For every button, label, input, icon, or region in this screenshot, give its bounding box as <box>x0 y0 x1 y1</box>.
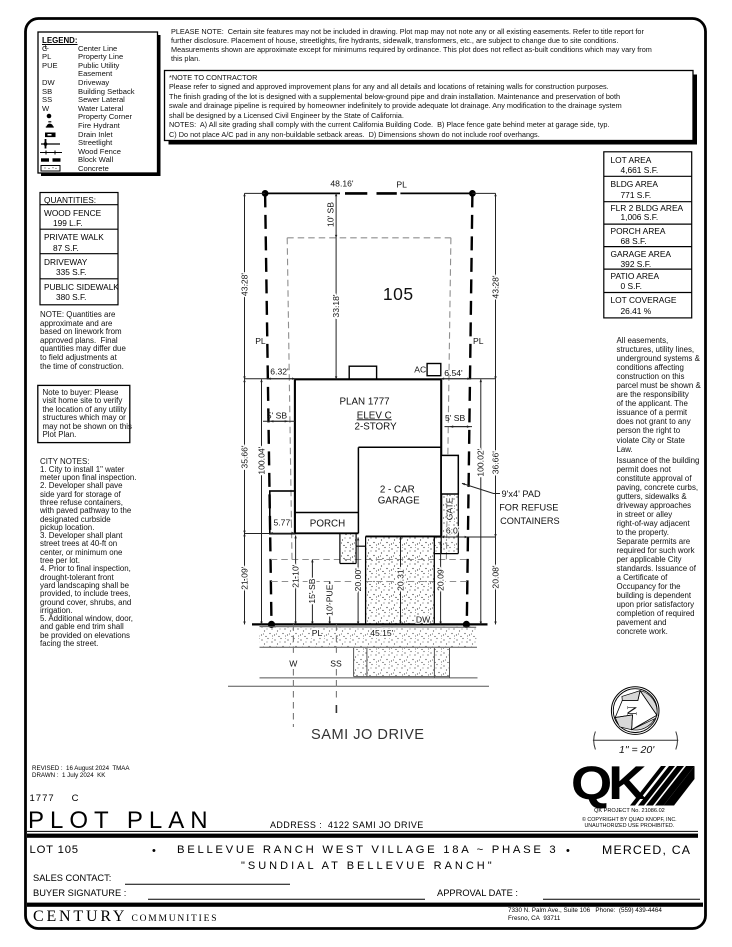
svg-text:33.18': 33.18' <box>331 294 341 318</box>
svg-text:PL: PL <box>312 628 323 638</box>
svg-text:43.28': 43.28' <box>490 275 500 299</box>
svg-text:9'x4' PAD: 9'x4' PAD <box>502 489 541 499</box>
svg-text:5' SB: 5' SB <box>445 413 466 423</box>
svg-text:5.77': 5.77' <box>274 518 293 528</box>
svg-text:20.00': 20.00' <box>353 568 363 592</box>
svg-text:5' SB: 5' SB <box>267 411 288 421</box>
svg-text:AC: AC <box>414 365 426 375</box>
svg-text:100.02': 100.02' <box>476 448 486 476</box>
svg-text:ELEV C: ELEV C <box>357 410 392 421</box>
svg-text:10' PUE: 10' PUE <box>325 584 335 616</box>
svg-text:48.16': 48.16' <box>330 179 354 189</box>
svg-text:20.31': 20.31' <box>395 567 405 591</box>
svg-text:PLAN 1777: PLAN 1777 <box>340 397 390 408</box>
svg-text:36.66': 36.66' <box>490 451 500 475</box>
svg-text:N: N <box>624 706 639 716</box>
svg-text:2 - CAR: 2 - CAR <box>380 484 415 495</box>
svg-text:15' SB: 15' SB <box>307 578 317 603</box>
svg-text:105: 105 <box>383 284 414 304</box>
svg-text:6.32': 6.32' <box>270 366 289 376</box>
svg-text:PL: PL <box>255 336 266 346</box>
svg-text:45.15': 45.15' <box>370 628 394 638</box>
svg-text:SS: SS <box>330 659 342 669</box>
svg-text:20.09': 20.09' <box>435 567 445 591</box>
svg-text:GARAGE: GARAGE <box>378 496 420 507</box>
svg-text:21.09': 21.09' <box>239 566 249 590</box>
svg-text:PL: PL <box>473 336 484 346</box>
svg-text:W: W <box>289 659 298 669</box>
svg-text:DW: DW <box>416 615 431 625</box>
svg-text:35.66': 35.66' <box>239 445 249 469</box>
svg-text:PL: PL <box>396 180 407 190</box>
svg-text:6.0': 6.0' <box>446 526 460 536</box>
svg-text:21.10': 21.10' <box>290 564 300 588</box>
svg-text:43.28': 43.28' <box>239 273 249 297</box>
svg-text:20.08': 20.08' <box>490 565 500 589</box>
svg-text:FOR REFUSE: FOR REFUSE <box>499 502 558 512</box>
svg-text:6.54': 6.54' <box>444 368 463 378</box>
svg-text:SAMI JO DRIVE: SAMI JO DRIVE <box>311 727 425 743</box>
svg-text:10' SB: 10' SB <box>325 202 335 227</box>
svg-text:1" = 20': 1" = 20' <box>619 744 655 756</box>
svg-text:2-STORY: 2-STORY <box>355 422 398 433</box>
svg-text:100.04': 100.04' <box>256 446 266 474</box>
svg-text:PORCH: PORCH <box>310 519 345 530</box>
svg-text:CONTAINERS: CONTAINERS <box>500 516 560 526</box>
svg-text:GATE: GATE <box>444 497 454 520</box>
